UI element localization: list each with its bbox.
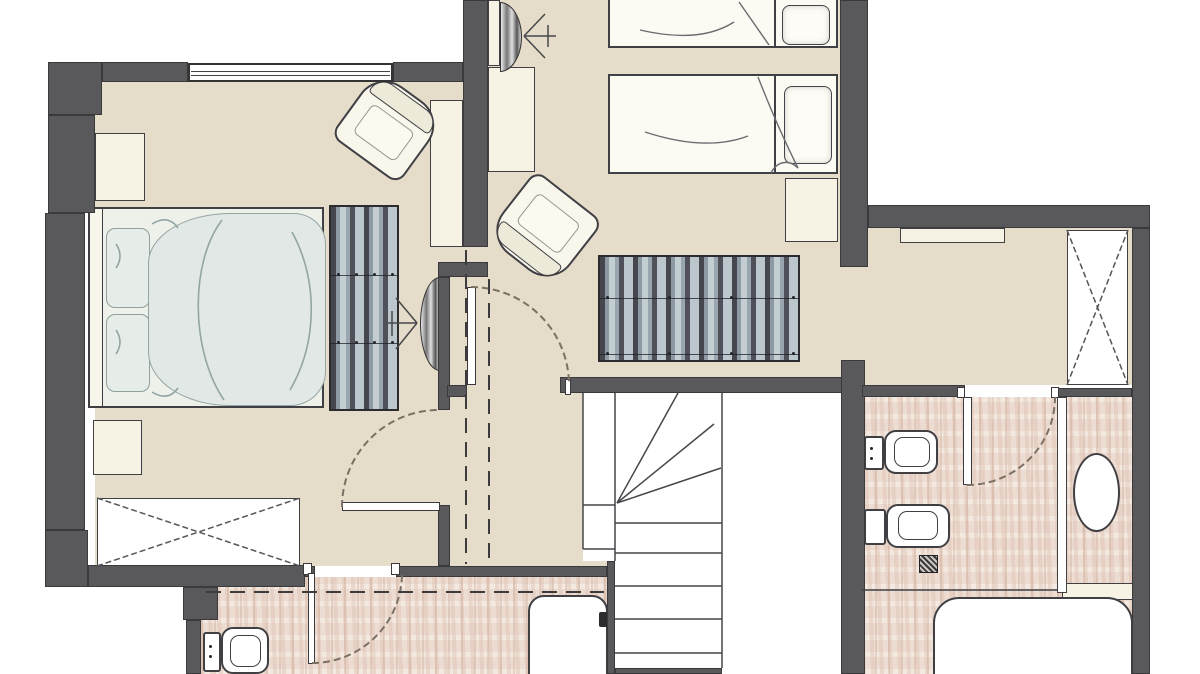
toilet-bathroom-left-tank xyxy=(203,632,221,672)
dresser-master-handle-dot xyxy=(355,273,358,276)
toilet-bathroom-right-button-0 xyxy=(870,447,873,450)
nightstand-master-b xyxy=(93,420,142,475)
wall-door-jamb-ne xyxy=(447,385,467,397)
wall-right-outer xyxy=(1132,228,1150,674)
bench-upper-hall-handle-dot xyxy=(792,352,795,355)
door-bathroom-left-leaf xyxy=(308,573,315,664)
wall-hall-south-b xyxy=(396,566,607,577)
bench-upper-hall-handle-dot xyxy=(668,352,671,355)
bed-duvet xyxy=(148,213,326,406)
jamb-hall-door xyxy=(565,379,571,395)
wall-left-corner xyxy=(45,530,88,587)
wall-bath-north-b xyxy=(1057,388,1132,397)
toilet-bathroom-left-button-0 xyxy=(209,645,212,648)
bed-twin-1 xyxy=(608,0,838,48)
bench-upper-hall-handle-dot xyxy=(606,296,609,299)
partition-bathroom-right xyxy=(1057,397,1067,593)
bidet-bathroom-right-seat xyxy=(898,511,938,540)
bench-upper-hall-handle-dot xyxy=(792,296,795,299)
bench-upper-hall-seam-0 xyxy=(600,298,798,299)
wall-stair-west xyxy=(607,561,615,674)
tv-panel-twin xyxy=(488,0,500,66)
floor-stairwell-0 xyxy=(583,393,843,561)
jamb-bath-right-b xyxy=(1051,387,1059,398)
wall-stair-east xyxy=(841,360,865,674)
dresser-master-handle-dot xyxy=(373,273,376,276)
dresser-master-handle-dot xyxy=(391,341,394,344)
desk-twin-room xyxy=(488,67,535,172)
bench-upper-hall-handle-dot xyxy=(730,352,733,355)
bench-upper-hall-seam-1 xyxy=(600,354,798,355)
dresser-master-seam-1 xyxy=(331,343,397,344)
toilet-bathroom-left-seat xyxy=(230,635,261,667)
floor-drain xyxy=(919,555,938,573)
dresser-master-handle-dot xyxy=(337,273,340,276)
wardrobe-east-corridor xyxy=(1067,230,1128,385)
wall-left-mid xyxy=(45,213,85,530)
door-upper-hall-leaf xyxy=(467,287,476,385)
bed-twin-2-divider xyxy=(774,76,776,172)
window-master-north xyxy=(188,63,393,82)
wall-stair-north xyxy=(560,377,843,393)
washbasin-oval xyxy=(1073,453,1120,532)
wall-jog xyxy=(438,262,488,277)
toilet-bathroom-right-tank xyxy=(864,436,884,470)
bench-upper-hall-handle-dot xyxy=(730,296,733,299)
nightstand-master-a xyxy=(95,133,145,201)
wall-south-step xyxy=(183,587,218,620)
bed-pillow-1 xyxy=(106,314,150,392)
dresser-master xyxy=(329,205,399,411)
wall-bath-north-a xyxy=(862,385,965,397)
dresser-master-handle-dot xyxy=(355,341,358,344)
nightstand-twin xyxy=(785,178,838,242)
wall-twin-west xyxy=(463,0,488,247)
bed-twin-2 xyxy=(608,74,838,174)
bench-upper-hall xyxy=(598,255,800,362)
wall-left-upper xyxy=(48,115,95,213)
bed-twin-2-pillow xyxy=(784,86,832,164)
wall-top-a xyxy=(102,62,188,82)
toilet-bathroom-left-button-1 xyxy=(209,655,212,658)
window-master-north-glass-line-1 xyxy=(191,75,390,76)
bench-upper-hall-handle-dot xyxy=(668,296,671,299)
cabinet-master-east xyxy=(430,100,463,247)
floor-plan-canvas xyxy=(0,0,1200,674)
bench-upper-hall-handle-dot xyxy=(606,352,609,355)
wall-east-top xyxy=(868,205,1150,228)
toilet-bathroom-right-button-1 xyxy=(870,457,873,460)
dresser-master-handle-dot xyxy=(391,273,394,276)
wall-top-left-corner xyxy=(48,62,102,115)
bed-pillow-0 xyxy=(106,228,150,308)
wall-south-west xyxy=(88,565,305,587)
wall-top-b xyxy=(393,62,463,82)
bed-twin-1-divider xyxy=(774,0,776,46)
toilet-bathroom-right-seat xyxy=(894,437,930,467)
dresser-master-handle-dot xyxy=(373,341,376,344)
floor-stairwell-1 xyxy=(615,561,843,674)
bathtub-left xyxy=(528,595,608,674)
bed-master xyxy=(88,207,324,408)
door-master-bedroom-leaf xyxy=(342,502,440,511)
door-bathroom-right-leaf xyxy=(963,397,972,485)
bathtub-right xyxy=(933,597,1133,674)
bed-headboard xyxy=(90,209,103,406)
bed-twin-1-pillow xyxy=(782,5,830,45)
wall-master-east-lower xyxy=(438,505,450,566)
window-master-north-glass-line-0 xyxy=(191,71,390,72)
jamb-bath-left-b xyxy=(391,563,400,575)
wardrobe-master xyxy=(97,498,300,566)
wall-stair-south xyxy=(615,668,722,674)
wall-twin-east xyxy=(840,0,868,267)
dresser-master-seam-0 xyxy=(331,275,397,276)
bidet-bathroom-right-tank xyxy=(864,509,886,545)
dresser-master-handle-dot xyxy=(337,341,340,344)
wall-south-low xyxy=(186,620,201,674)
shelf-east-corridor xyxy=(900,228,1005,243)
